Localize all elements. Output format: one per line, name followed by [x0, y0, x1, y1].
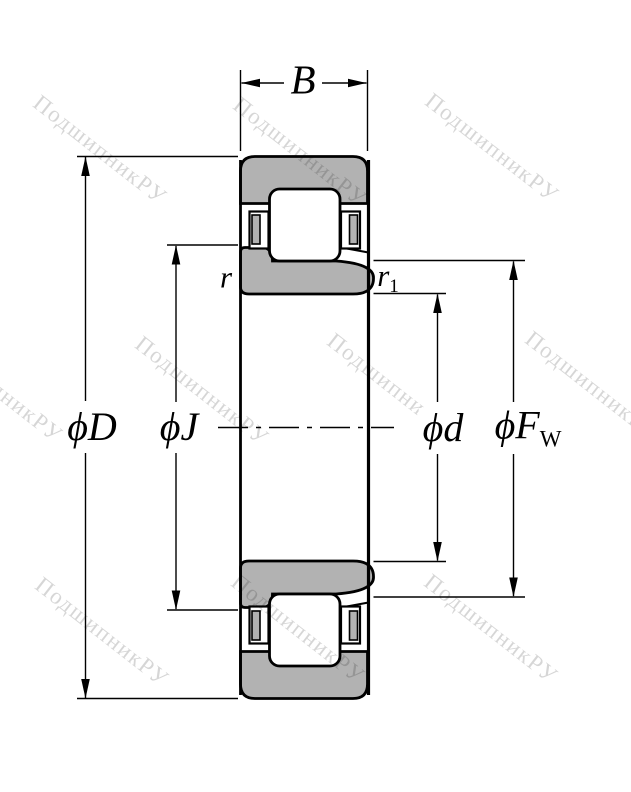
arrow-FW-down	[509, 578, 518, 598]
inner-chamfer-label: r1	[377, 260, 399, 296]
raceway-diameter-label: ϕFW	[491, 406, 566, 451]
arrow-D-down	[81, 679, 90, 699]
bottom-section	[241, 561, 374, 699]
chamfer-label: r	[220, 262, 232, 293]
arrow-D-up	[81, 157, 90, 177]
bearing-diagram: ПодшипникРУ ПодшипникРУ ПодшипникРУ Подш…	[0, 0, 631, 792]
cage-left-bottom-insert	[252, 611, 260, 640]
outer-diameter-label: ϕD	[63, 407, 121, 447]
bore-diameter-label: ϕd	[419, 408, 468, 448]
arrow-d-up	[433, 294, 442, 314]
cage-right-bottom-insert	[350, 611, 358, 640]
arrow-B-right	[348, 79, 367, 88]
arrow-FW-up	[509, 261, 518, 281]
roller-bottom	[270, 594, 341, 666]
bearing-cross-section-drawing	[0, 0, 631, 792]
cage-left-top-insert	[252, 215, 260, 244]
width-label: B	[286, 60, 319, 101]
arrow-J-up	[172, 245, 181, 265]
rib-diameter-label: ϕJ	[156, 407, 202, 447]
arrow-d-down	[433, 542, 442, 562]
top-section	[241, 157, 374, 295]
arrow-J-down	[172, 591, 181, 611]
cage-right-top-insert	[350, 215, 358, 244]
roller-top	[270, 189, 341, 261]
arrow-B-left	[242, 79, 261, 88]
